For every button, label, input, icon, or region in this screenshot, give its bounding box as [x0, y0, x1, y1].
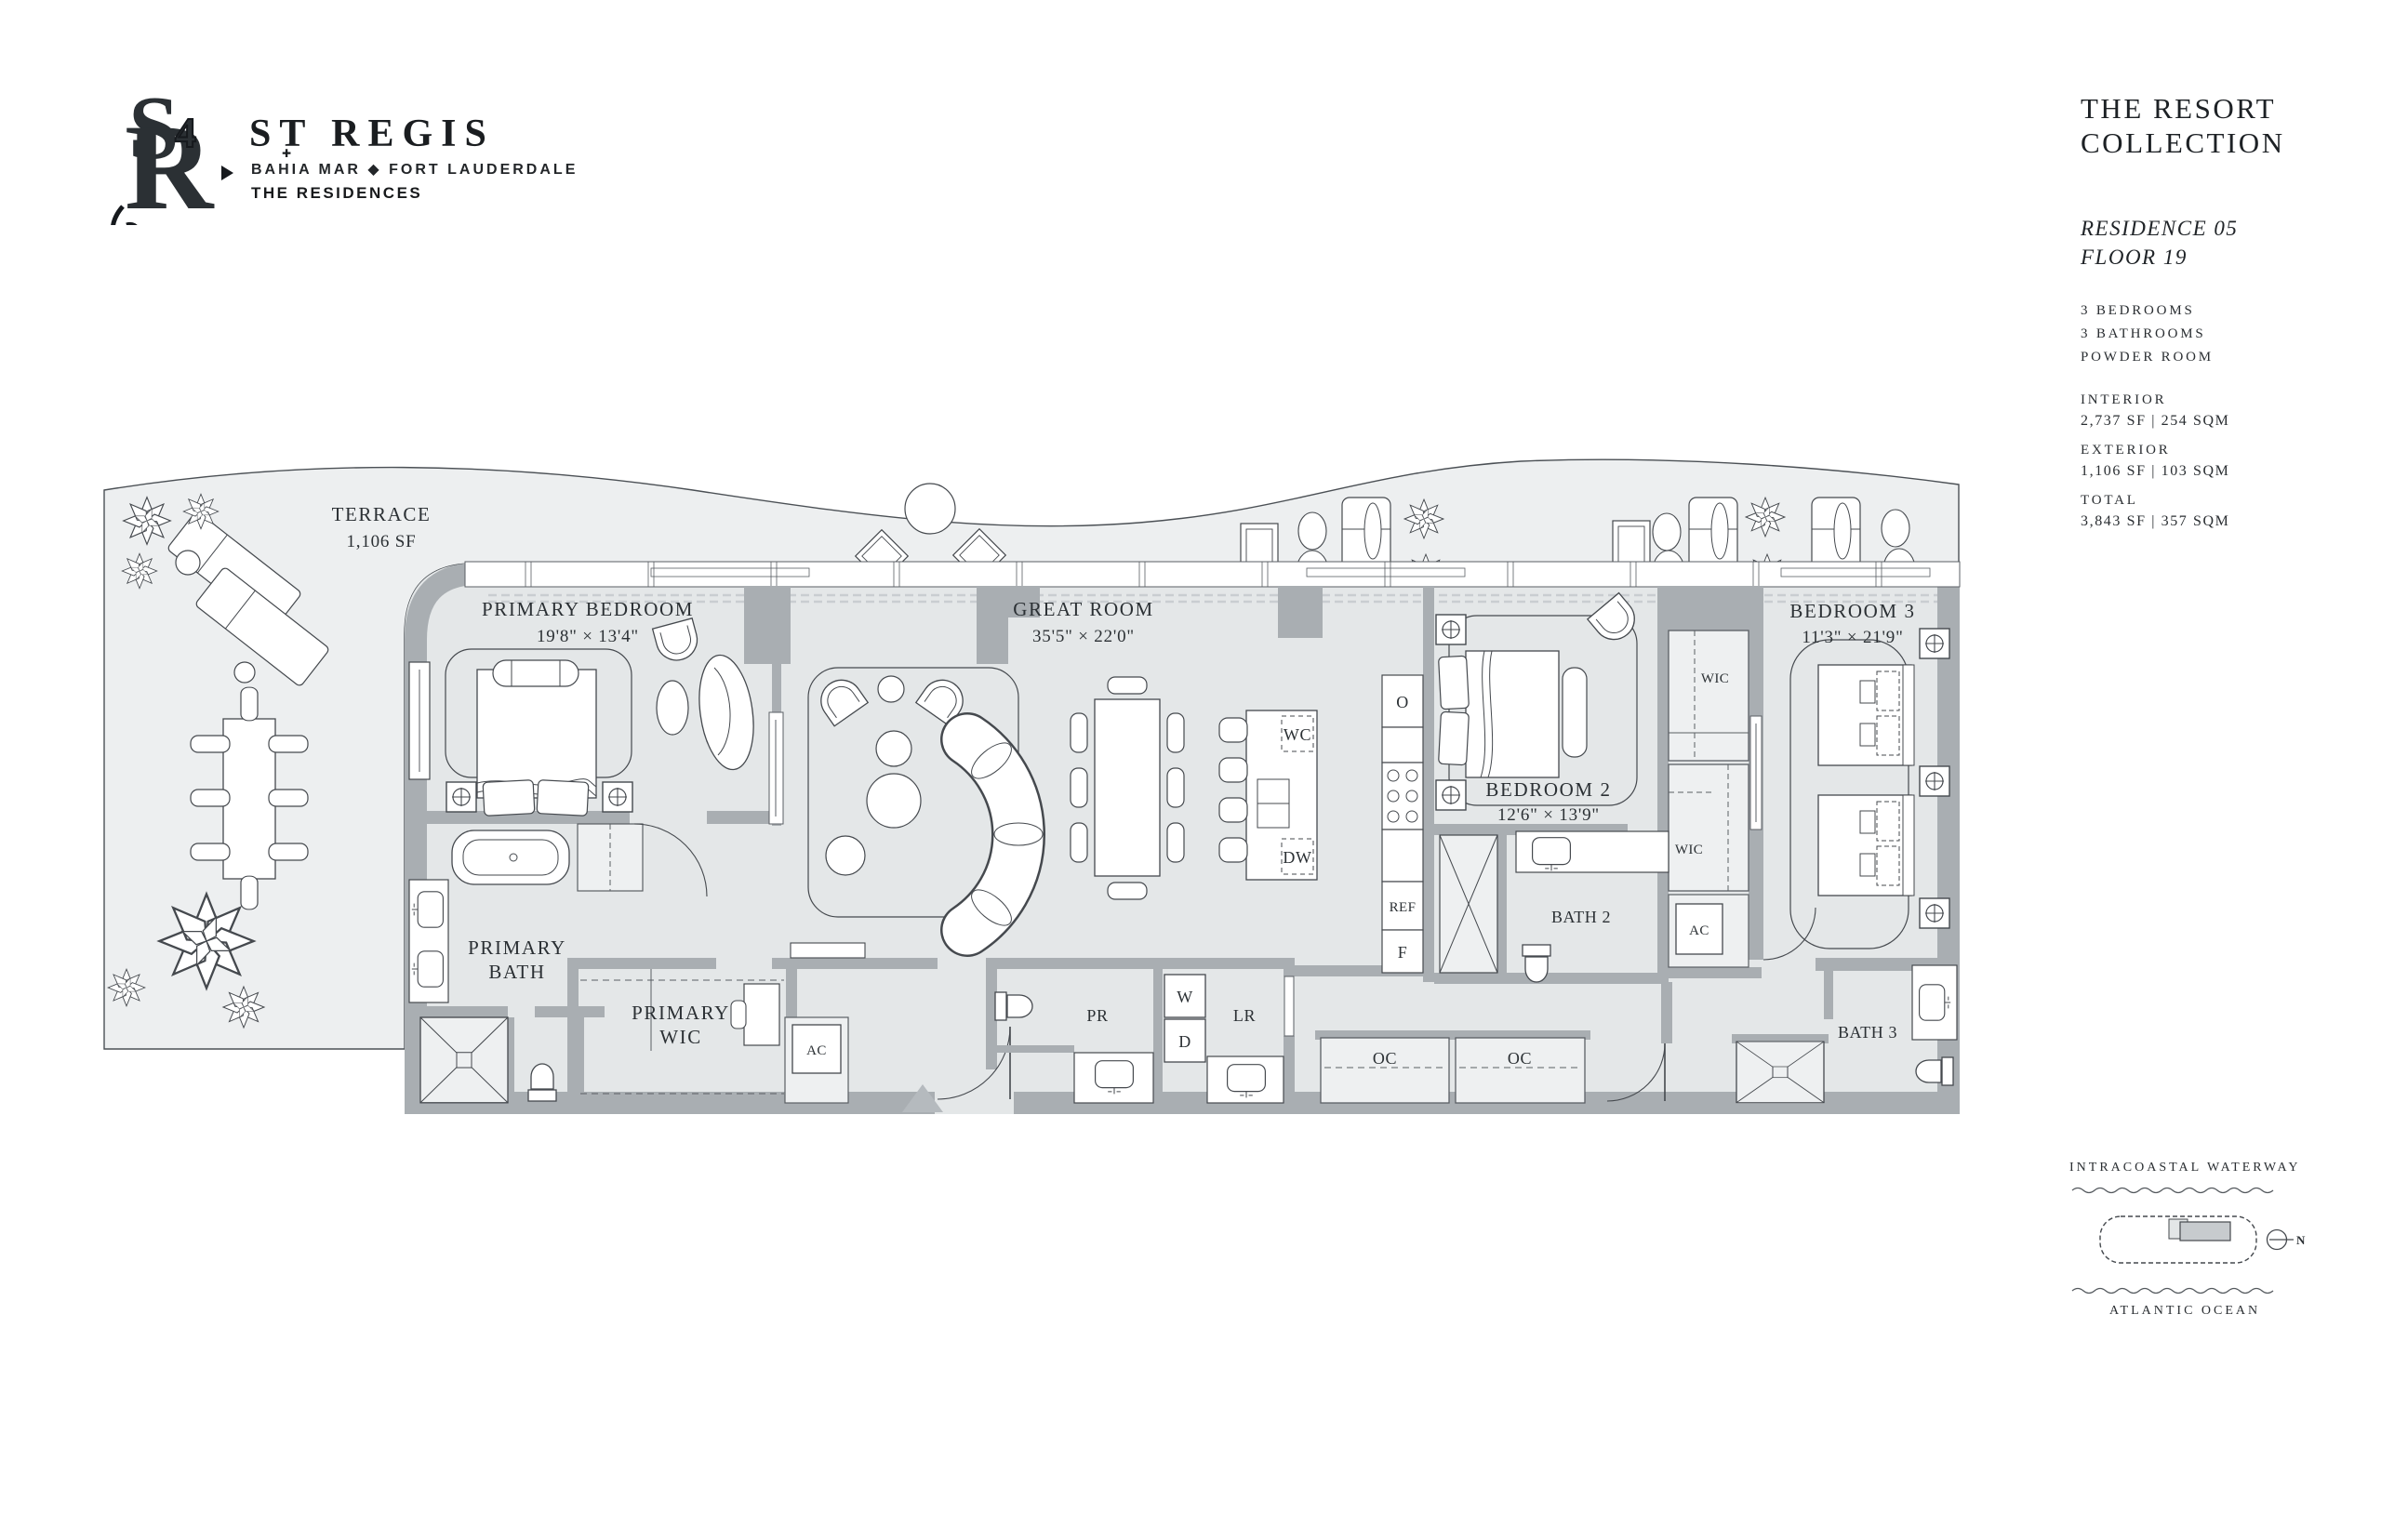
- floor-plan: TERRACE 1,106 SF: [0, 0, 2381, 1540]
- dishwasher-label: DW: [1283, 848, 1311, 867]
- primary-bath-label-2: BATH: [488, 961, 545, 983]
- dryer-label: D: [1178, 1032, 1191, 1051]
- window-wall: [465, 562, 1960, 587]
- great-room-dims: 35'5" × 22'0": [1032, 627, 1135, 646]
- plant-icon: [1404, 499, 1443, 538]
- bedroom2-label: BEDROOM 2: [1485, 778, 1611, 801]
- terrace-area-label: 1,106 SF: [346, 532, 416, 551]
- primary-bedroom-dims: 19'8" × 13'4": [537, 627, 639, 646]
- floorplan-page: S R 4 ST REGIS ✚ BAHIA MAR ◆ FORT LAUDER…: [0, 0, 2381, 1540]
- washer-label: W: [1177, 988, 1193, 1006]
- oc-closet-label-2: OC: [1508, 1049, 1532, 1068]
- plant-icon: [159, 894, 253, 988]
- plant-icon: [122, 553, 156, 588]
- terrace-label: TERRACE: [332, 503, 432, 525]
- plant-icon: [1746, 498, 1785, 537]
- bath3-label: BATH 3: [1838, 1023, 1897, 1042]
- plant-icon: [108, 969, 145, 1006]
- oven-label: O: [1396, 693, 1409, 711]
- bedroom3-label: BEDROOM 3: [1789, 600, 1915, 622]
- bath2-label: BATH 2: [1551, 908, 1611, 926]
- powder-room-label: PR: [1086, 1006, 1108, 1025]
- wic-label-1: WIC: [1701, 671, 1729, 686]
- plant-icon: [183, 494, 218, 528]
- bedroom3-dims: 11'3" × 21'9": [1802, 628, 1903, 647]
- wic-label-2: WIC: [1675, 843, 1703, 857]
- primary-bedroom-label: PRIMARY BEDROOM: [482, 598, 694, 620]
- oc-closet-label-1: OC: [1373, 1049, 1397, 1068]
- fridge-label: REF: [1390, 900, 1417, 915]
- primary-wic-label-2: WIC: [659, 1026, 702, 1048]
- bedroom2-dims: 12'6" × 13'9": [1497, 805, 1600, 825]
- freezer-label: F: [1398, 943, 1408, 962]
- plant-icon: [124, 498, 171, 545]
- primary-wic-label-1: PRIMARY: [632, 1002, 730, 1024]
- great-room-label: GREAT ROOM: [1013, 598, 1154, 620]
- ac-label-2: AC: [806, 1043, 827, 1058]
- ac-label-1: AC: [1689, 923, 1709, 938]
- laundry-room-label: LR: [1233, 1006, 1256, 1025]
- plant-icon: [223, 987, 264, 1028]
- primary-bath-label-1: PRIMARY: [468, 936, 566, 959]
- wine-cooler-label: WC: [1284, 725, 1311, 744]
